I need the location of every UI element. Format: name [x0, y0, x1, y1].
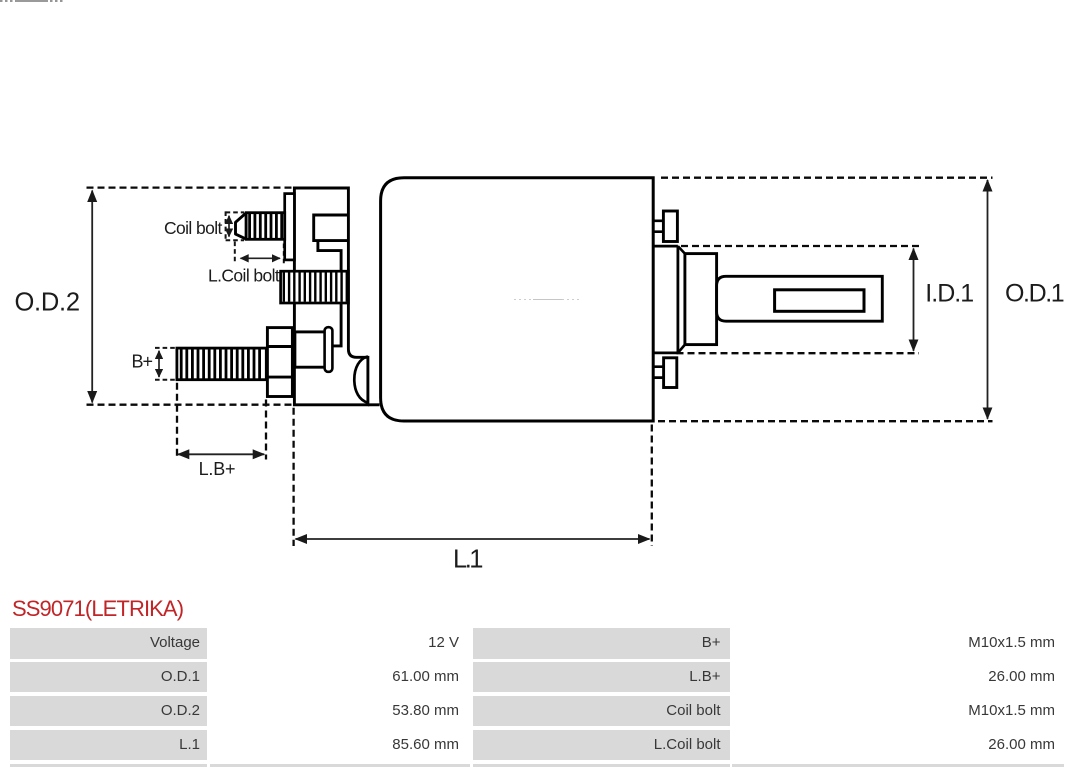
svg-text:O.D.2: O.D.2	[14, 289, 79, 317]
svg-text:L.Coil bolt: L.Coil bolt	[208, 266, 280, 286]
svg-text:L.1: L.1	[453, 545, 482, 573]
svg-text:L.B+: L.B+	[199, 459, 236, 479]
svg-text:O.D.1: O.D.1	[1005, 280, 1064, 308]
svg-text:B+: B+	[131, 352, 152, 372]
svg-text:I.D.1: I.D.1	[925, 280, 973, 308]
svg-text:Coil bolt: Coil bolt	[164, 218, 223, 238]
